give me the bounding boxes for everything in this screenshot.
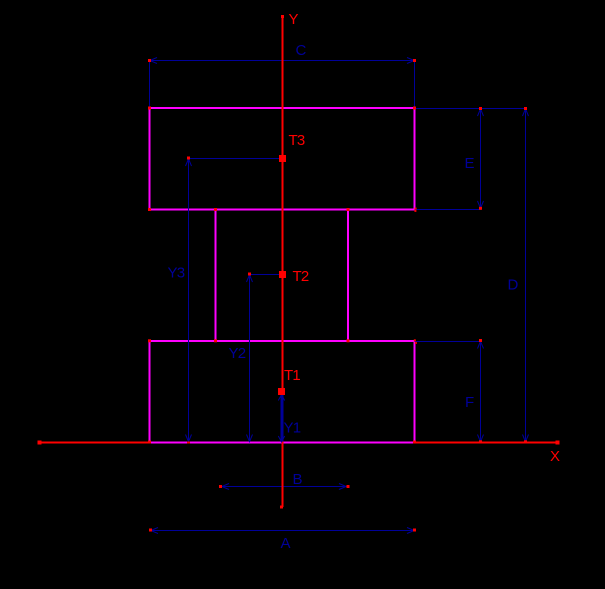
svg-text:B: B	[293, 471, 303, 488]
svg-text:Y3: Y3	[168, 265, 185, 282]
svg-text:Y2: Y2	[229, 345, 246, 362]
svg-text:C: C	[296, 42, 307, 59]
svg-text:Y1: Y1	[284, 420, 301, 437]
svg-text:X: X	[550, 448, 560, 465]
svg-text:A: A	[281, 535, 291, 552]
svg-text:F: F	[465, 394, 474, 411]
svg-text:D: D	[508, 277, 519, 294]
svg-text:E: E	[465, 155, 475, 172]
svg-text:Y: Y	[289, 11, 299, 28]
svg-text:T3: T3	[289, 132, 305, 149]
svg-text:T2: T2	[293, 268, 309, 285]
svg-text:T1: T1	[284, 367, 300, 384]
